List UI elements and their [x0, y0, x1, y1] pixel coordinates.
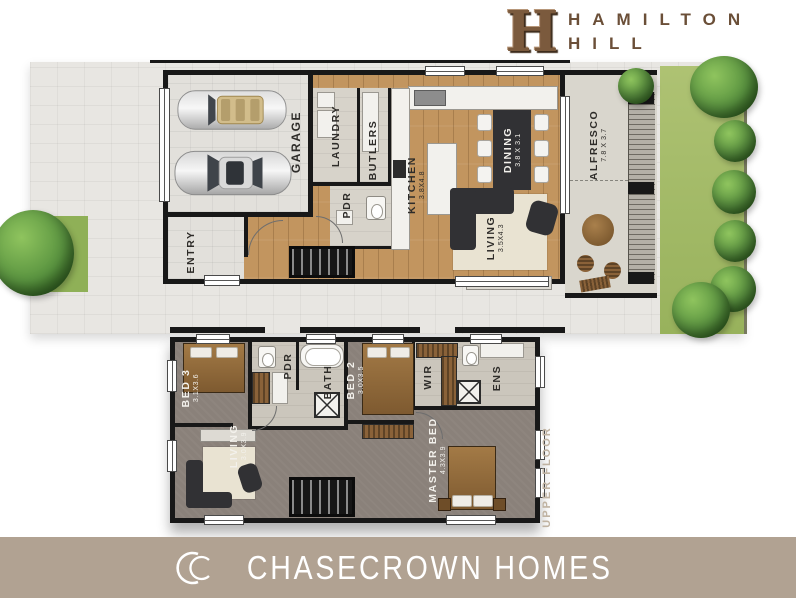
chair-icon — [534, 166, 549, 183]
chair-icon — [477, 114, 492, 131]
floor-plan-page: H HAMILTON HILL — [0, 0, 796, 598]
wall — [296, 342, 299, 390]
rear-fence-segment — [455, 327, 565, 333]
alfresco-sliding-door — [560, 96, 570, 214]
room-label-master-bed: MASTER BED 4.3X3.9 — [427, 417, 447, 502]
window — [196, 334, 230, 344]
wall — [175, 423, 233, 427]
cooktop-icon — [393, 160, 406, 178]
double-vanity-icon — [480, 343, 524, 358]
window — [496, 66, 544, 76]
toilet-icon — [366, 196, 386, 220]
robe-icon — [362, 424, 414, 439]
upper-floor-caption: UPPER FLOOR — [541, 426, 553, 527]
room-label-bath: BATH — [322, 365, 334, 400]
robe-icon — [441, 356, 457, 406]
outdoor-table-icon — [582, 214, 614, 246]
bush-icon — [714, 220, 756, 262]
bush-icon — [618, 68, 654, 104]
wall — [168, 212, 313, 217]
room-label-bed3: BED 3 3.1X3.6 — [180, 369, 200, 408]
window — [470, 334, 502, 344]
bush-icon — [714, 120, 756, 162]
room-label-dining: DINING 3.8 X 3.1 — [502, 127, 522, 173]
chair-icon — [477, 140, 492, 157]
deck-post — [628, 272, 654, 284]
tree-icon — [672, 282, 730, 338]
room-label-wir: WIR — [422, 364, 434, 389]
toilet-icon — [258, 346, 276, 368]
shower-icon — [457, 380, 481, 404]
room-label-ens: ENS — [491, 365, 503, 391]
car-convertible-icon — [176, 88, 288, 132]
wall — [565, 293, 657, 298]
window — [372, 334, 404, 344]
room-label-entry: ENTRY — [185, 230, 197, 273]
footer-banner: CHASECROWN HOMES — [0, 537, 796, 598]
robe-icon — [252, 372, 270, 404]
window — [535, 356, 545, 388]
window — [204, 275, 240, 286]
rear-fence-segment — [170, 327, 265, 333]
bed-icon — [448, 446, 496, 510]
window — [204, 515, 244, 525]
brand-name-line1: HAMILTON — [568, 10, 752, 30]
room-label-alfresco: ALFRESCO 7.8 X 3.7 — [588, 110, 608, 181]
room-label-bed2: BED 2 3.0X3.5 — [345, 361, 365, 400]
window — [446, 515, 496, 525]
cc-logo-icon — [167, 547, 215, 589]
tree-icon — [690, 56, 758, 118]
toilet-icon — [462, 345, 479, 366]
company-name: CHASECROWN HOMES — [247, 548, 613, 587]
car-sedan-icon — [174, 148, 292, 198]
chair-icon — [534, 140, 549, 157]
front-boundary-fence — [150, 60, 570, 63]
deck-post — [628, 182, 654, 194]
chair-icon — [477, 166, 492, 183]
room-label-garage: GARAGE — [289, 111, 303, 173]
bush-icon — [712, 170, 756, 214]
stairs — [289, 477, 355, 517]
window — [167, 440, 177, 472]
bedside-table-icon — [493, 498, 506, 511]
chair-icon — [534, 114, 549, 131]
room-label-kitchen: KITCHEN 3.8X4.8 — [406, 156, 426, 214]
room-label-living: LIVING 3.5X4.3 — [485, 216, 505, 261]
window — [167, 360, 177, 392]
garage-door — [159, 88, 170, 202]
room-label-laundry: LAUNDRY — [330, 105, 342, 167]
brand-name-line2: HILL — [568, 34, 654, 54]
sofa-icon — [450, 188, 476, 250]
room-label-butlers: BUTLERS — [367, 120, 379, 181]
window — [425, 66, 465, 76]
sink-icon — [414, 90, 446, 106]
room-label-upper-pdr: PDR — [282, 353, 294, 380]
entry-floor — [168, 217, 244, 279]
outdoor-stool-icon — [577, 255, 594, 272]
hamilton-hill-emblem-icon: H — [506, 4, 558, 60]
stairs — [289, 246, 355, 278]
sliding-door — [455, 276, 549, 287]
window — [306, 334, 336, 344]
bed-icon — [362, 343, 414, 415]
rear-fence-segment — [300, 327, 420, 333]
room-label-pdr: PDR — [341, 192, 353, 219]
sofa-icon — [186, 492, 232, 508]
wall — [252, 426, 348, 430]
room-label-upper-living: LIVING 3.0X3.9 — [228, 424, 248, 469]
wall — [412, 406, 537, 410]
